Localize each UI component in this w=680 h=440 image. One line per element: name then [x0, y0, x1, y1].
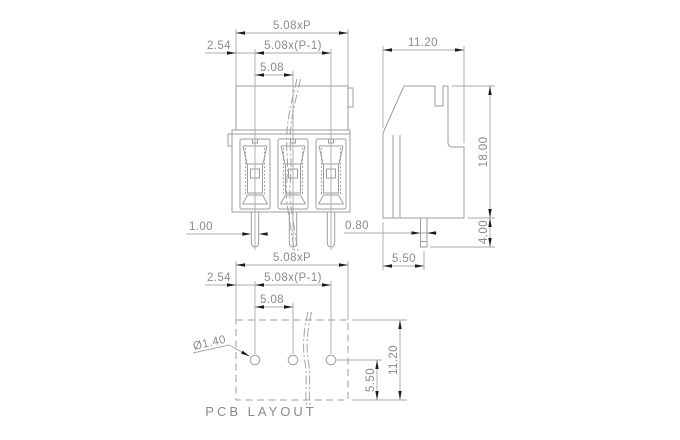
technical-drawing: 5.08xP 5.08x(P-1) 2.54 5.08 1.00	[0, 0, 680, 440]
front-dim-span-offset: 5.08x(P-1) 2.54	[205, 40, 331, 55]
pcb-hole-3	[326, 355, 336, 365]
pcb-dim-pitch-label: 5.08	[260, 294, 284, 306]
pcb-dim-span-label: 5.08x(P-1)	[264, 272, 322, 284]
pcb-hole-1	[250, 355, 260, 365]
front-dim-pitch: 5.08	[255, 62, 293, 77]
pcb-dim-offset-label: 2.54	[207, 272, 231, 284]
front-dim-offset-label: 2.54	[207, 40, 231, 52]
pcb-break-line	[304, 312, 312, 406]
side-dim-pin-length: 4.00	[430, 218, 495, 247]
side-dim-height: 18.00	[452, 86, 495, 218]
right-dovetail-tab	[348, 88, 353, 107]
pcb-hole-2	[288, 355, 298, 365]
pcb-holes	[250, 355, 336, 365]
side-dim-height-label: 18.00	[478, 137, 490, 168]
front-dim-pitch-label: 5.08	[260, 62, 284, 74]
side-body-outline	[383, 86, 464, 218]
side-dim-pin-length-label: 4.00	[478, 220, 490, 244]
dim-side-pin-width: 0.80	[344, 220, 437, 235]
front-dim-total: 5.08xP	[236, 20, 348, 35]
side-dim-pin-offset-label: 5.50	[392, 253, 416, 265]
pcb-layout-view: 5.08xP 5.08x(P-1) 2.54 5.08 Ø1.40	[192, 252, 407, 419]
side-pin	[421, 218, 428, 247]
pcb-dim-span-offset: 5.08x(P-1) 2.54	[205, 272, 331, 287]
side-dim-pin-width-label: 0.80	[345, 220, 369, 232]
pcb-dim-hole-dia: Ø1.40	[192, 334, 250, 357]
pcb-dim-hole-offset-label: 5.50	[365, 368, 377, 392]
front-dim-pin-width-label: 1.00	[189, 221, 213, 233]
pcb-dim-pitch: 5.08	[255, 294, 293, 309]
left-flange-tab	[228, 134, 232, 146]
pcb-dim-total-label: 5.08xP	[273, 252, 311, 264]
side-dim-width: 11.20	[383, 37, 464, 143]
pcb-layout-caption: PCB LAYOUT	[205, 404, 316, 419]
pcb-dim-depth-label: 11.20	[388, 345, 400, 375]
side-dim-width-label: 11.20	[408, 37, 438, 49]
side-view: 11.20 18.00 4.00 5.50	[383, 37, 495, 270]
side-dim-pin-offset: 5.50	[383, 222, 424, 270]
pcb-dim-hole-dia-label: Ø1.40	[192, 334, 227, 353]
drawing-canvas: 5.08xP 5.08x(P-1) 2.54 5.08 1.00	[0, 0, 680, 440]
front-dim-total-label: 5.08xP	[273, 20, 311, 32]
front-dim-span-label: 5.08x(P-1)	[264, 40, 322, 52]
front-view: 5.08xP 5.08x(P-1) 2.54 5.08 1.00	[186, 20, 437, 252]
